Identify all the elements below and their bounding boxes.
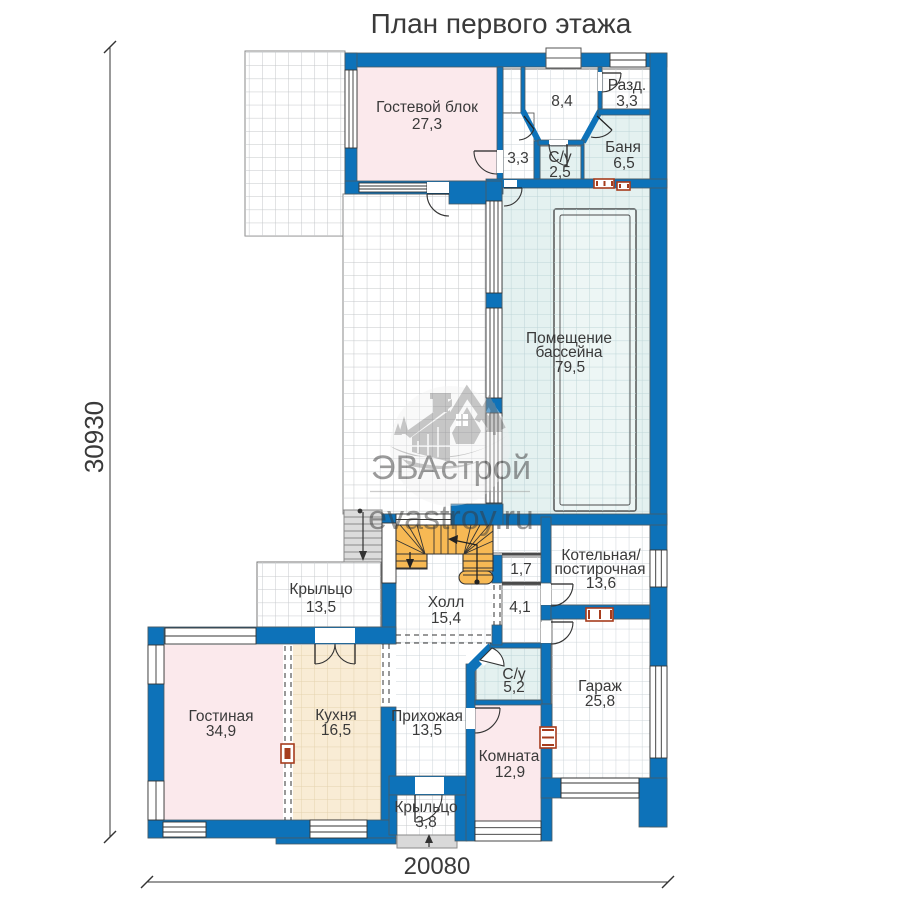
svg-text:1,7: 1,7 (510, 561, 532, 578)
svg-text:Разд.: Разд. (608, 77, 646, 94)
svg-text:13,6: 13,6 (586, 575, 616, 592)
svg-text:13,5: 13,5 (412, 722, 442, 739)
svg-text:Баня: Баня (605, 139, 641, 156)
svg-text:3,3: 3,3 (616, 93, 638, 110)
svg-text:20080: 20080 (404, 853, 471, 880)
svg-text:79,5: 79,5 (555, 359, 585, 376)
svg-text:25,8: 25,8 (585, 693, 615, 710)
svg-text:12,9: 12,9 (495, 764, 525, 781)
svg-text:ЭВАстрой: ЭВАстрой (371, 449, 531, 487)
svg-text:6,5: 6,5 (613, 155, 635, 172)
svg-text:34,9: 34,9 (206, 723, 236, 740)
svg-text:16,5: 16,5 (321, 722, 351, 739)
svg-text:3,3: 3,3 (507, 150, 529, 167)
svg-text:4,1: 4,1 (509, 599, 531, 616)
svg-text:30930: 30930 (79, 401, 109, 473)
svg-text:Комната: Комната (479, 748, 540, 765)
svg-text:15,4: 15,4 (431, 610, 462, 627)
svg-text:5,2: 5,2 (503, 679, 525, 696)
svg-text:13,5: 13,5 (306, 599, 336, 616)
svg-text:27,3: 27,3 (412, 116, 442, 133)
svg-text:2,5: 2,5 (549, 164, 571, 181)
svg-text:План первого этажа: План первого этажа (371, 8, 632, 39)
svg-text:3,8: 3,8 (415, 814, 437, 831)
svg-text:Крыльцо: Крыльцо (289, 581, 352, 598)
svg-text:8,4: 8,4 (551, 93, 573, 110)
svg-text:Гостевой блок: Гостевой блок (376, 99, 478, 116)
svg-text:evastroy.ru: evastroy.ru (368, 499, 534, 537)
svg-text:Холл: Холл (428, 594, 465, 611)
